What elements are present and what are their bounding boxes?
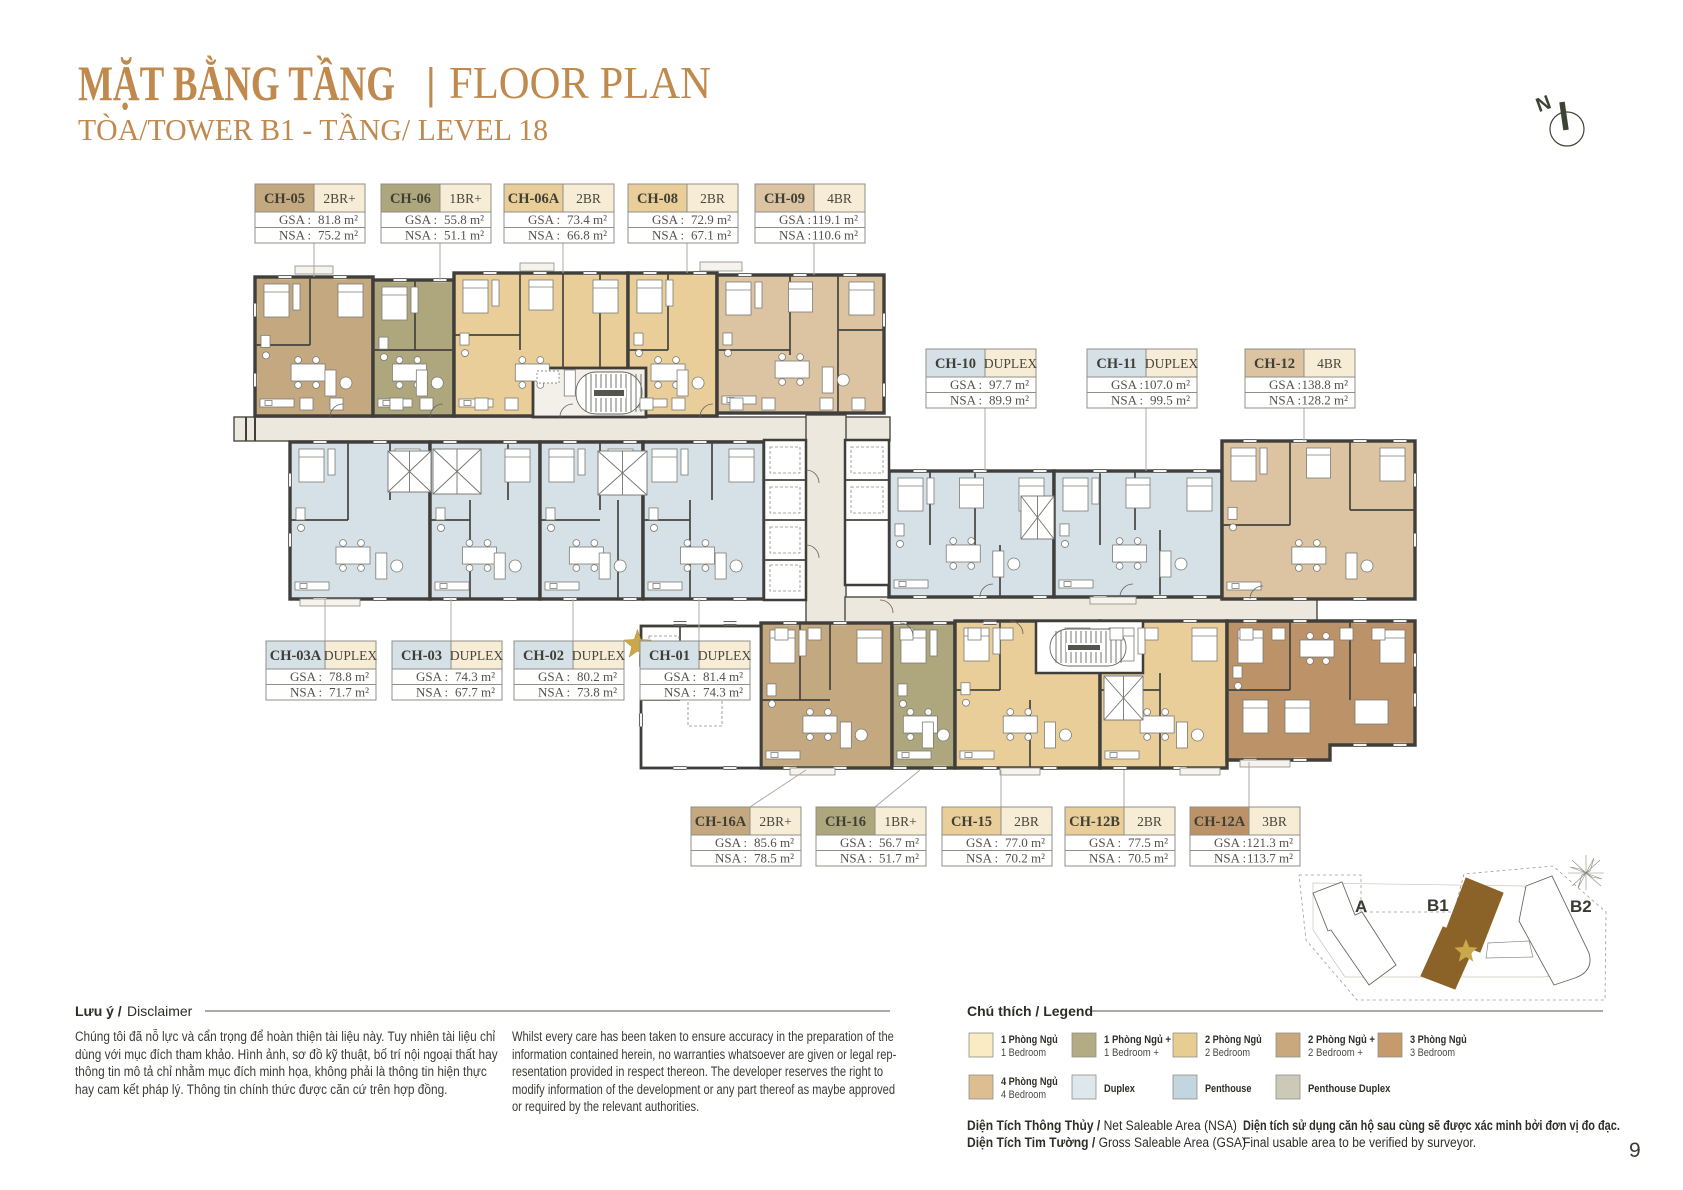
svg-text:78.5 m²: 78.5 m² <box>754 851 794 866</box>
svg-text:CH-12B: CH-12B <box>1069 814 1120 830</box>
svg-text:CH-12A: CH-12A <box>1194 814 1246 830</box>
svg-text:MẶT BẰNG TẦNG: MẶT BẰNG TẦNG <box>78 54 395 111</box>
svg-text:9: 9 <box>1629 1139 1641 1162</box>
svg-text:GSA :: GSA : <box>1214 835 1246 850</box>
svg-text:Chú thích / Legend: Chú thích / Legend <box>967 1003 1093 1019</box>
svg-text:NSA :: NSA : <box>290 685 322 700</box>
svg-text:Duplex: Duplex <box>1104 1083 1136 1095</box>
svg-text:GSA :: GSA : <box>1111 377 1143 392</box>
svg-text:NSA :: NSA : <box>528 228 560 243</box>
svg-text:70.5 m²: 70.5 m² <box>1128 851 1168 866</box>
svg-text:NSA :: NSA : <box>1269 393 1301 408</box>
svg-text:78.8 m²: 78.8 m² <box>329 669 369 684</box>
svg-text:GSA :: GSA : <box>279 212 311 227</box>
svg-text:107.0 m²: 107.0 m² <box>1143 377 1190 392</box>
svg-text:GSA :: GSA : <box>966 835 998 850</box>
svg-text:119.1 m²: 119.1 m² <box>812 212 858 227</box>
svg-text:1 Phòng Ngủ: 1 Phòng Ngủ <box>1001 1034 1058 1046</box>
svg-text:Penthouse Duplex: Penthouse Duplex <box>1308 1083 1391 1095</box>
svg-text:51.1 m²: 51.1 m² <box>444 228 484 243</box>
svg-text:TÒA/TOWER B1 - TẦNG/ LEVEL 18: TÒA/TOWER B1 - TẦNG/ LEVEL 18 <box>78 112 548 147</box>
svg-text:4BR: 4BR <box>1317 356 1342 371</box>
svg-text:2 Bedroom: 2 Bedroom <box>1205 1047 1250 1059</box>
svg-text:GSA :: GSA : <box>840 835 872 850</box>
svg-text:GSA :: GSA : <box>405 212 437 227</box>
svg-text:B2: B2 <box>1570 897 1592 916</box>
svg-text:2BR: 2BR <box>1014 814 1039 829</box>
svg-text:NSA :: NSA : <box>416 685 448 700</box>
svg-text:B1: B1 <box>1427 896 1449 915</box>
svg-text:NSA :: NSA : <box>279 228 311 243</box>
svg-text:3 Bedroom: 3 Bedroom <box>1410 1047 1455 1059</box>
svg-text:70.2 m²: 70.2 m² <box>1005 851 1045 866</box>
svg-text:DUPLEX: DUPLEX <box>984 356 1037 371</box>
svg-text:NSA :: NSA : <box>538 685 570 700</box>
svg-text:77.0 m²: 77.0 m² <box>1005 835 1045 850</box>
svg-text:CH-05: CH-05 <box>264 191 305 207</box>
svg-text:CH-03A: CH-03A <box>270 648 322 664</box>
svg-text:N: N <box>1533 91 1554 117</box>
svg-text:NSA :: NSA : <box>715 851 747 866</box>
svg-text:CH-06: CH-06 <box>390 191 431 207</box>
svg-text:81.4 m²: 81.4 m² <box>703 669 743 684</box>
svg-text:113.7 m²: 113.7 m² <box>1247 851 1293 866</box>
svg-text:CH-15: CH-15 <box>951 814 992 830</box>
svg-text:2BR: 2BR <box>576 191 601 206</box>
svg-text:89.9 m²: 89.9 m² <box>989 393 1029 408</box>
svg-text:71.7 m²: 71.7 m² <box>329 685 369 700</box>
svg-text:1 Phòng Ngủ +: 1 Phòng Ngủ + <box>1104 1034 1171 1046</box>
svg-text:GSA :: GSA : <box>528 212 560 227</box>
svg-text:73.4 m²: 73.4 m² <box>567 212 607 227</box>
svg-text:GSA :: GSA : <box>290 669 322 684</box>
svg-text:DUPLEX: DUPLEX <box>698 648 751 663</box>
svg-text:2BR: 2BR <box>1137 814 1162 829</box>
svg-text:Disclaimer: Disclaimer <box>127 1003 193 1019</box>
svg-text:GSA :: GSA : <box>715 835 747 850</box>
svg-text:73.8 m²: 73.8 m² <box>577 685 617 700</box>
svg-text:2BR+: 2BR+ <box>759 814 791 829</box>
svg-text:3BR: 3BR <box>1262 814 1287 829</box>
svg-text:75.2 m²: 75.2 m² <box>318 228 358 243</box>
svg-text:56.7 m²: 56.7 m² <box>879 835 919 850</box>
svg-text:CH-12: CH-12 <box>1254 356 1295 372</box>
svg-text:128.2 m²: 128.2 m² <box>1301 393 1348 408</box>
svg-text:66.8 m²: 66.8 m² <box>567 228 607 243</box>
svg-text:74.3 m²: 74.3 m² <box>703 685 743 700</box>
svg-text:GSA :: GSA : <box>1089 835 1121 850</box>
svg-text:51.7 m²: 51.7 m² <box>879 851 919 866</box>
svg-text:NSA :: NSA : <box>840 851 872 866</box>
svg-text:GSA :: GSA : <box>538 669 570 684</box>
svg-text:Lưu ý /: Lưu ý / <box>75 1003 122 1019</box>
svg-text:CH-03: CH-03 <box>401 648 442 664</box>
svg-text:97.7 m²: 97.7 m² <box>989 377 1029 392</box>
svg-text:2BR+: 2BR+ <box>323 191 355 206</box>
svg-text:2 Phòng Ngủ: 2 Phòng Ngủ <box>1205 1034 1262 1046</box>
svg-text:110.6 m²: 110.6 m² <box>812 228 858 243</box>
svg-text:NSA :: NSA : <box>1214 851 1246 866</box>
svg-text:NSA :: NSA : <box>950 393 982 408</box>
svg-text:DUPLEX: DUPLEX <box>572 648 625 663</box>
svg-text:2 Bedroom +: 2 Bedroom + <box>1308 1047 1363 1059</box>
svg-text:121.3 m²: 121.3 m² <box>1246 835 1293 850</box>
svg-text:CH-08: CH-08 <box>637 191 678 207</box>
svg-text:NSA :: NSA : <box>779 228 811 243</box>
svg-text:NSA :: NSA : <box>966 851 998 866</box>
svg-text:1BR+: 1BR+ <box>884 814 916 829</box>
svg-text:138.8 m²: 138.8 m² <box>1301 377 1348 392</box>
svg-text:NSA :: NSA : <box>664 685 696 700</box>
svg-text:A: A <box>1355 897 1367 916</box>
svg-text:81.8 m²: 81.8 m² <box>318 212 358 227</box>
svg-text:CH-02: CH-02 <box>523 648 564 664</box>
svg-text:GSA :: GSA : <box>950 377 982 392</box>
svg-text:NSA :: NSA : <box>405 228 437 243</box>
svg-text:GSA :: GSA : <box>779 212 811 227</box>
svg-text:CH-01: CH-01 <box>649 648 690 664</box>
svg-text:|: | <box>426 59 436 108</box>
svg-text:GSA :: GSA : <box>664 669 696 684</box>
svg-text:4 Bedroom: 4 Bedroom <box>1001 1089 1046 1101</box>
svg-text:DUPLEX: DUPLEX <box>450 648 503 663</box>
svg-text:NSA :: NSA : <box>652 228 684 243</box>
svg-text:1 Bedroom: 1 Bedroom <box>1001 1047 1046 1059</box>
svg-text:74.3 m²: 74.3 m² <box>455 669 495 684</box>
svg-text:85.6 m²: 85.6 m² <box>754 835 794 850</box>
svg-text:4 Phòng Ngủ: 4 Phòng Ngủ <box>1001 1076 1058 1088</box>
svg-text:CH-16A: CH-16A <box>695 814 747 830</box>
svg-text:DUPLEX: DUPLEX <box>324 648 377 663</box>
svg-text:DUPLEX: DUPLEX <box>1145 356 1198 371</box>
svg-text:CH-16: CH-16 <box>825 814 866 830</box>
svg-text:Penthouse: Penthouse <box>1205 1083 1251 1095</box>
svg-text:1BR+: 1BR+ <box>449 191 481 206</box>
svg-text:NSA :: NSA : <box>1089 851 1121 866</box>
svg-text:72.9 m²: 72.9 m² <box>691 212 731 227</box>
svg-text:67.7 m²: 67.7 m² <box>455 685 495 700</box>
svg-text:55.8 m²: 55.8 m² <box>444 212 484 227</box>
svg-text:CH-09: CH-09 <box>764 191 805 207</box>
svg-text:GSA :: GSA : <box>1269 377 1301 392</box>
svg-text:CH-10: CH-10 <box>935 356 976 372</box>
svg-text:2 Phòng Ngủ +: 2 Phòng Ngủ + <box>1308 1034 1375 1046</box>
svg-text:80.2 m²: 80.2 m² <box>577 669 617 684</box>
svg-text:2BR: 2BR <box>700 191 725 206</box>
svg-text:3 Phòng Ngủ: 3 Phòng Ngủ <box>1410 1034 1467 1046</box>
svg-text:1 Bedroom +: 1 Bedroom + <box>1104 1047 1159 1059</box>
svg-text:GSA :: GSA : <box>416 669 448 684</box>
svg-text:CH-11: CH-11 <box>1096 356 1136 372</box>
svg-text:CH-06A: CH-06A <box>508 191 560 207</box>
svg-text:4BR: 4BR <box>827 191 852 206</box>
svg-text:GSA :: GSA : <box>652 212 684 227</box>
svg-text:77.5 m²: 77.5 m² <box>1128 835 1168 850</box>
svg-text:FLOOR PLAN: FLOOR PLAN <box>449 57 711 108</box>
svg-text:99.5 m²: 99.5 m² <box>1150 393 1190 408</box>
svg-text:67.1 m²: 67.1 m² <box>691 228 731 243</box>
svg-text:NSA :: NSA : <box>1111 393 1143 408</box>
